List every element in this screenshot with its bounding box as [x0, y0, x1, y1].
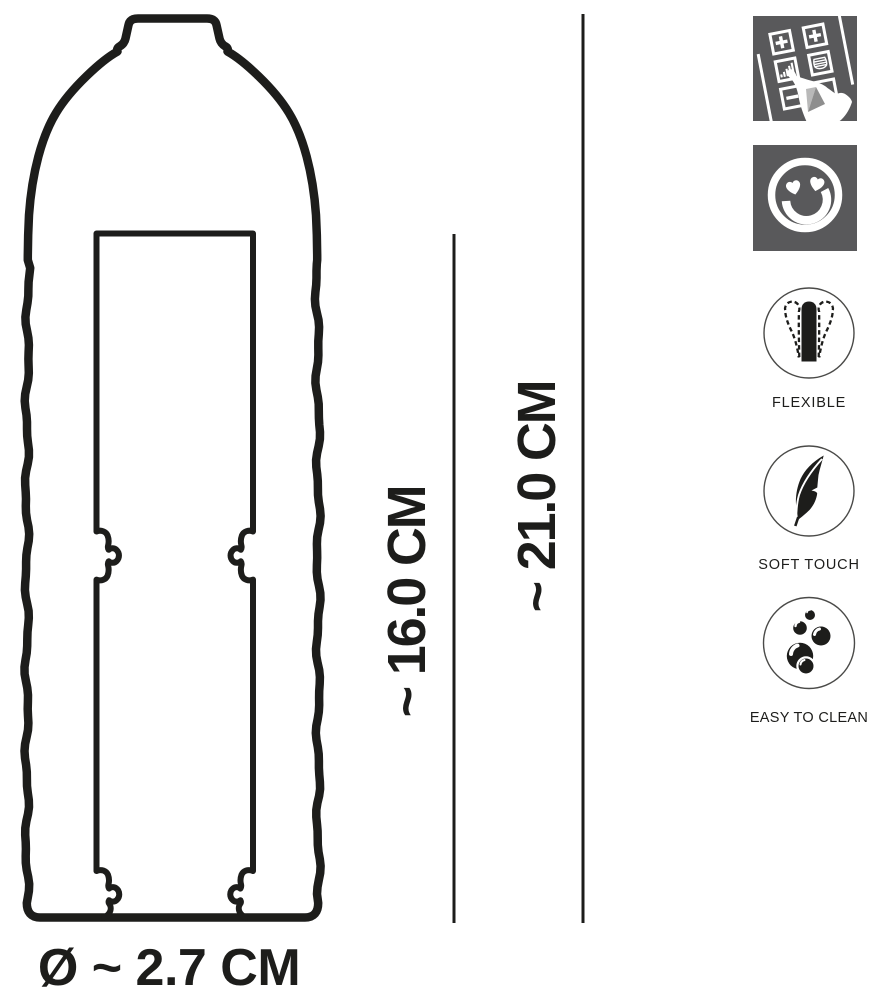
svg-text:FLEXIBLE: FLEXIBLE	[772, 395, 846, 411]
svg-text:SOFT TOUCH: SOFT TOUCH	[758, 557, 859, 573]
svg-text:EASY TO CLEAN: EASY TO CLEAN	[750, 710, 868, 726]
svg-text:~ 21.0 CM: ~ 21.0 CM	[507, 382, 567, 613]
svg-text:Ø ~ 2.7 CM: Ø ~ 2.7 CM	[38, 939, 300, 997]
svg-text:~ 16.0 CM: ~ 16.0 CM	[377, 487, 437, 718]
